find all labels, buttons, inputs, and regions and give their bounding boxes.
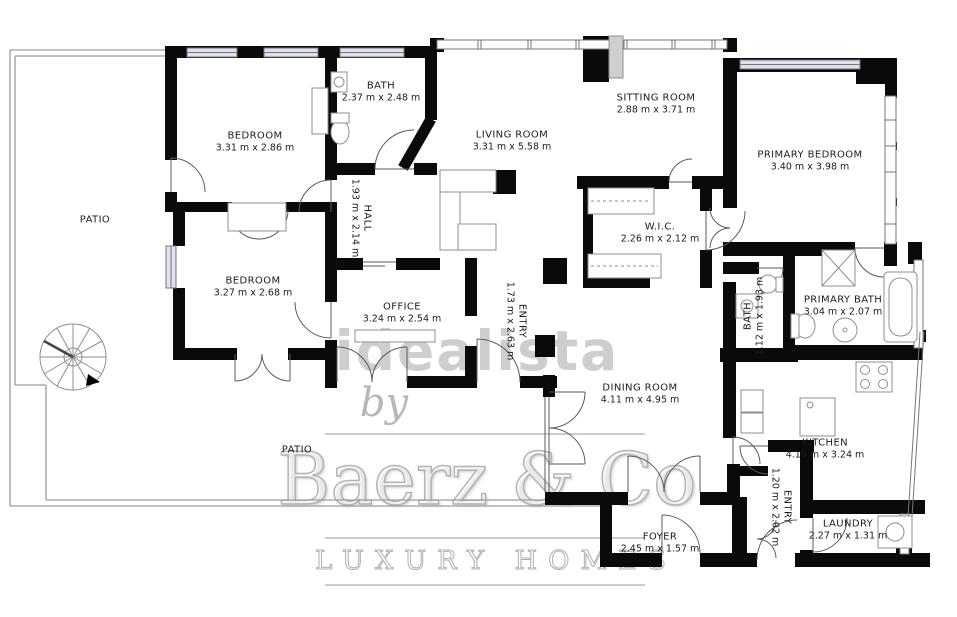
room-label-bath-1: BATH 2.37 m x 2.48 m: [342, 79, 421, 104]
room-label-patio-bottom: PATIO: [282, 444, 312, 457]
room-label-living-room: LIVING ROOM 3.31 m x 5.58 m: [473, 128, 552, 153]
room-label-patio-left: PATIO: [80, 214, 110, 227]
room-label-laundry: LAUNDRY 2.27 m x 1.31 m: [809, 517, 888, 542]
room-label-foyer: FOYER 2.45 m x 1.57 m: [621, 530, 700, 555]
room-label-bedroom-2: BEDROOM 3.27 m x 2.68 m: [214, 274, 293, 299]
room-label-bedroom-1: BEDROOM 3.31 m x 2.86 m: [216, 129, 295, 154]
room-label-entry-1: ENTRY 1.73 m x 2.63 m: [503, 282, 528, 361]
room-labels: PATIO BEDROOM 3.31 m x 2.86 m BATH 2.37 …: [0, 0, 957, 617]
floor-plan: idealista by Baerz & Co LUXURY HOMES: [0, 0, 957, 617]
room-label-bath-2: BATH 1.12 m x 1.93 m: [741, 277, 766, 356]
room-label-office: OFFICE 3.24 m x 2.54 m: [363, 300, 442, 325]
room-label-primary-bath: PRIMARY BATH 3.04 m x 2.07 m: [804, 293, 883, 318]
room-label-sitting-room: SITTING ROOM 2.88 m x 3.71 m: [617, 91, 696, 116]
room-label-primary-bedroom: PRIMARY BEDROOM 3.40 m x 3.98 m: [757, 148, 862, 173]
room-label-dining-room: DINING ROOM 4.11 m x 4.95 m: [601, 381, 680, 406]
room-label-wic: W.I.C. 2.26 m x 2.12 m: [621, 220, 700, 245]
room-label-hall: HALL 1.93 m x 2.14 m: [348, 179, 373, 258]
room-label-entry-2: ENTRY 1.20 m x 2.02 m: [768, 468, 793, 547]
room-label-kitchen: KITCHEN 4.19 m x 3.24 m: [786, 436, 865, 461]
